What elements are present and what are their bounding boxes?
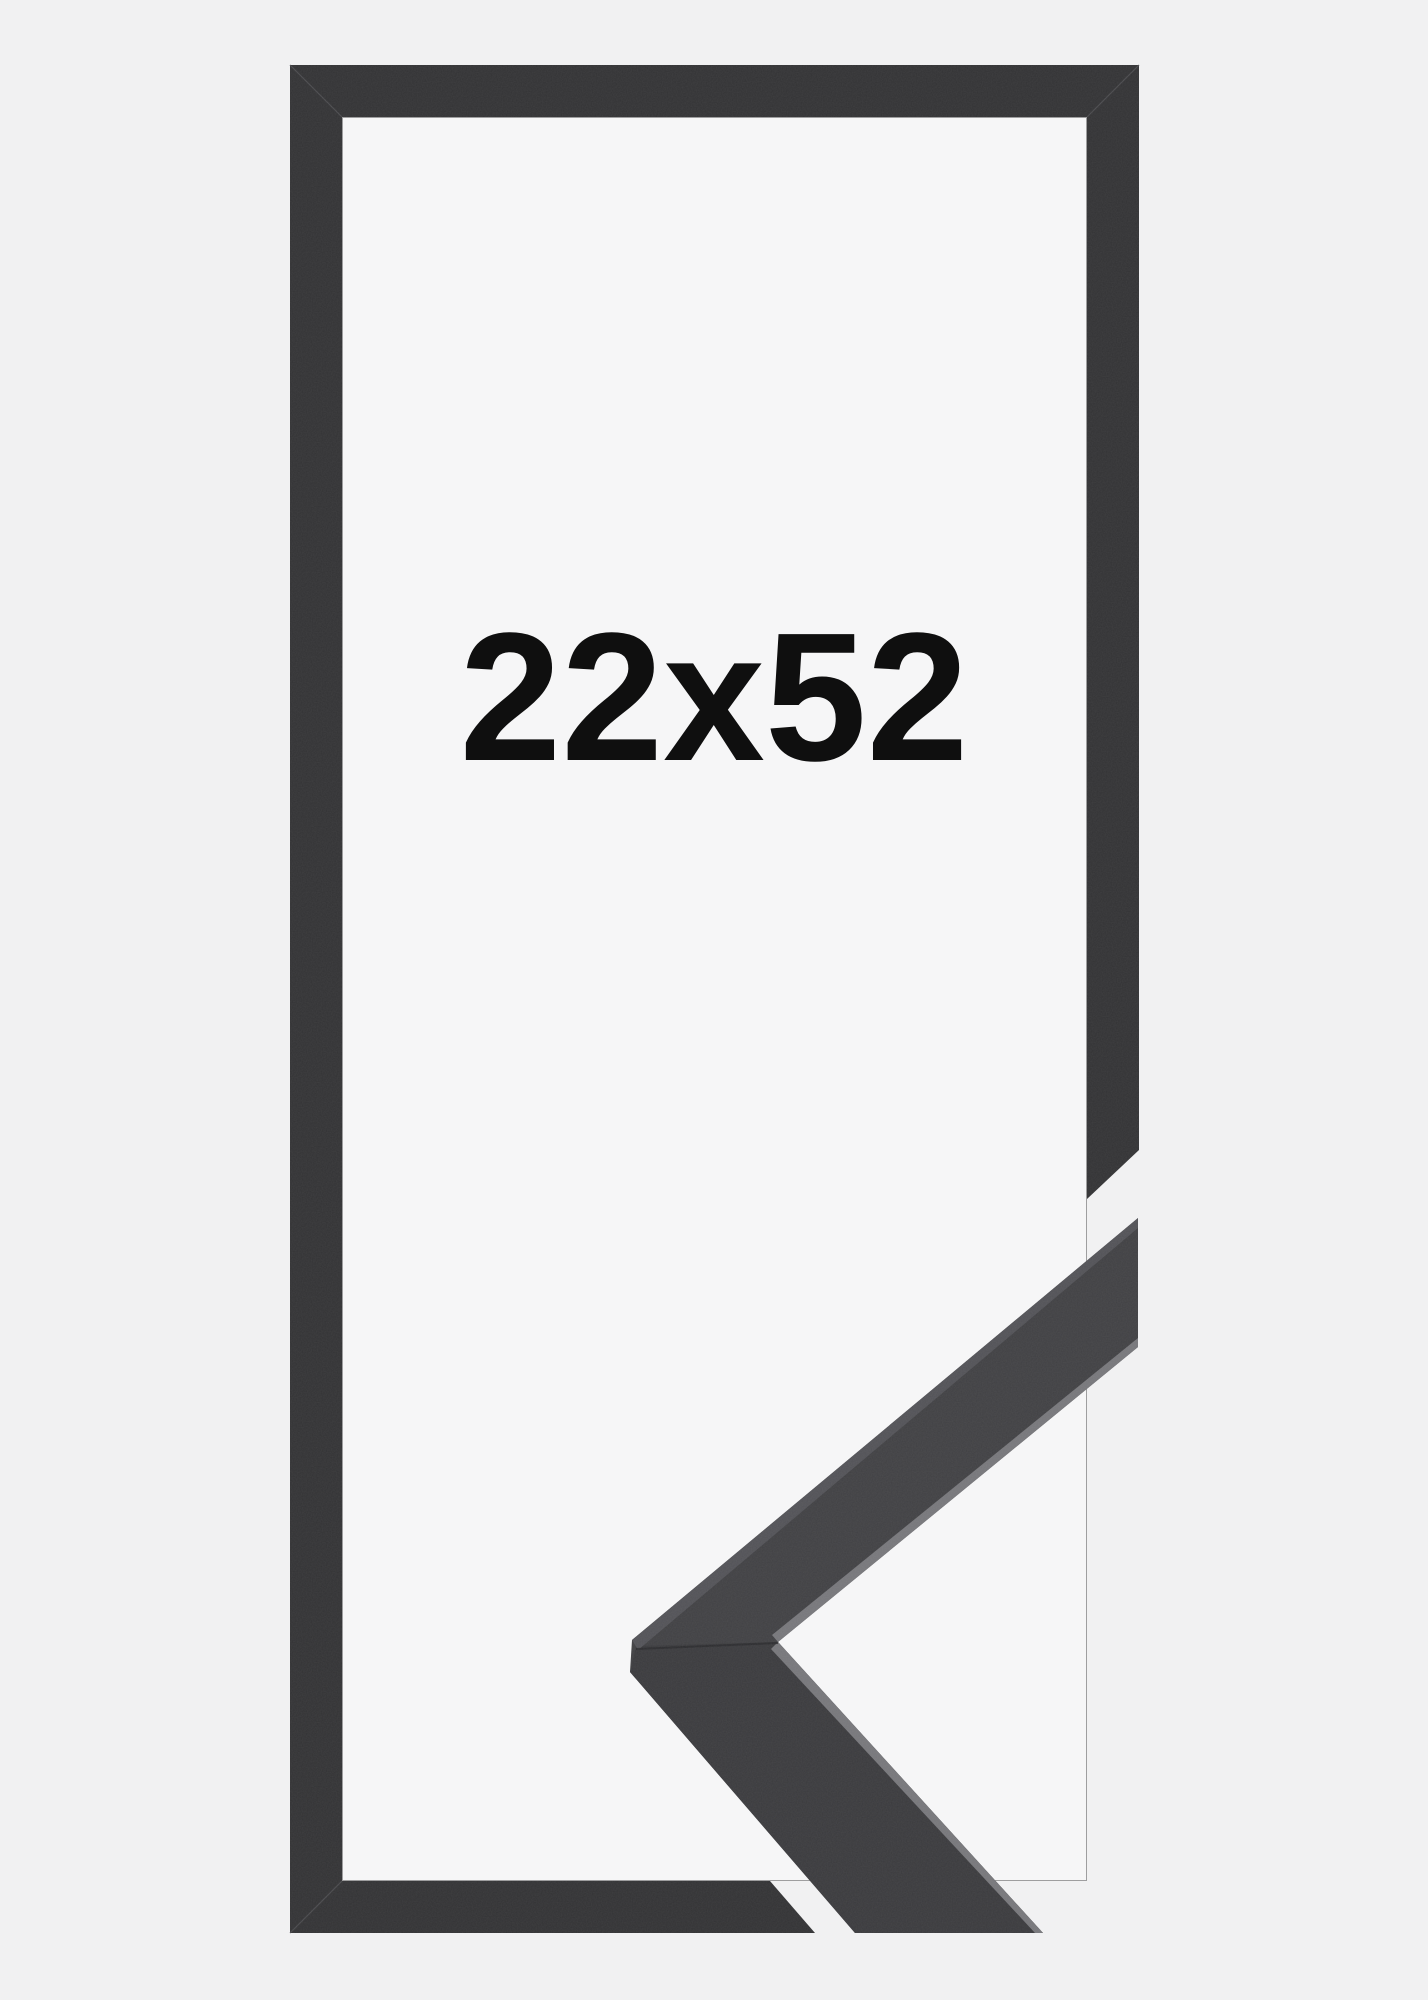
size-label: 22x52 (0, 605, 1428, 788)
product-image: 22x52 (0, 0, 1428, 2000)
frame-graphic (0, 0, 1428, 2000)
